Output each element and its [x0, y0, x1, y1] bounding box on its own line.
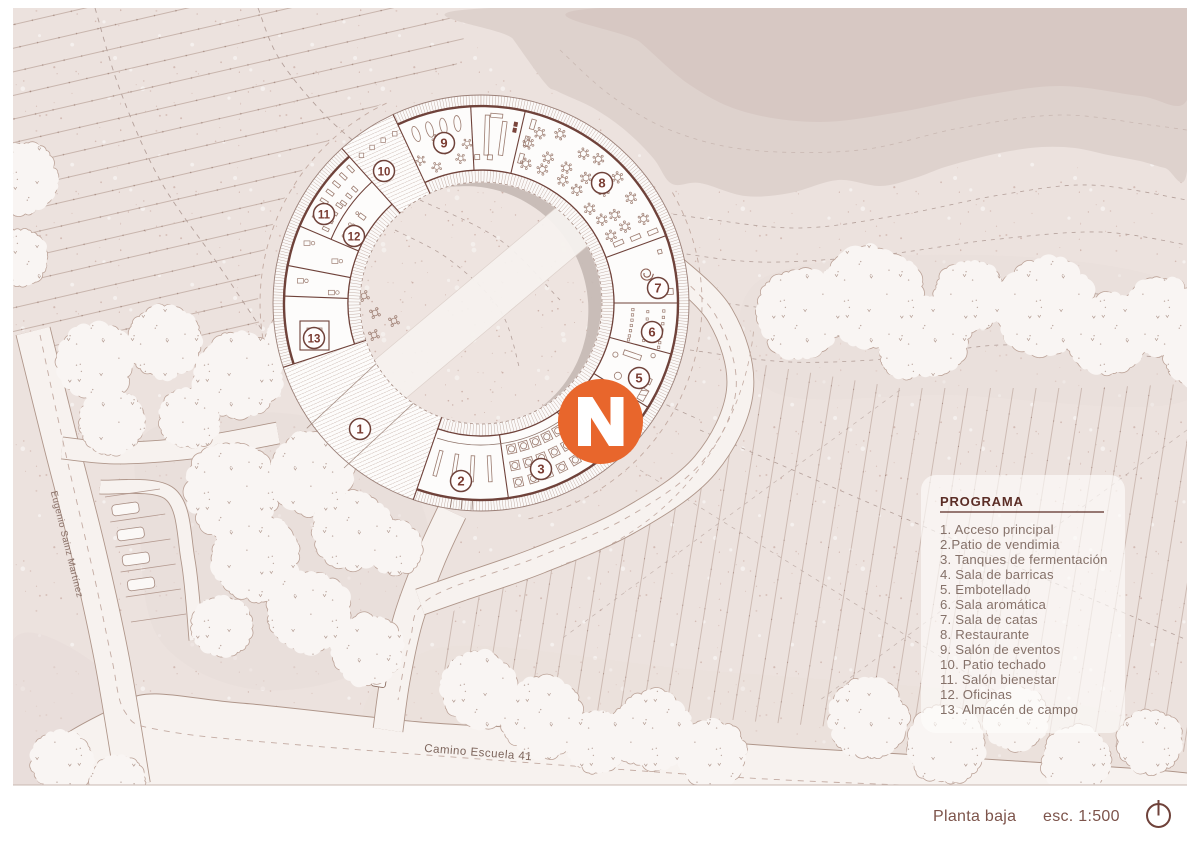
svg-text:5. Embotellado: 5. Embotellado	[940, 582, 1031, 597]
svg-text:10. Patio techado: 10. Patio techado	[940, 657, 1046, 672]
svg-text:5: 5	[635, 370, 642, 385]
svg-text:esc. 1:500: esc. 1:500	[1043, 808, 1120, 825]
svg-text:3. Tanques de fermentación: 3. Tanques de fermentación	[940, 552, 1108, 567]
svg-text:2.Patio de vendimia: 2.Patio de vendimia	[940, 537, 1060, 552]
svg-text:4. Sala de barricas: 4. Sala de barricas	[940, 567, 1054, 582]
svg-text:1. Acceso principal: 1. Acceso principal	[940, 522, 1054, 537]
svg-text:2: 2	[457, 473, 464, 488]
svg-text:13. Almacén de campo: 13. Almacén de campo	[940, 702, 1078, 717]
svg-text:7: 7	[654, 280, 661, 295]
svg-text:11. Salón bienestar: 11. Salón bienestar	[940, 672, 1057, 687]
svg-text:12: 12	[348, 231, 361, 243]
svg-text:12. Oficinas: 12. Oficinas	[940, 687, 1012, 702]
svg-text:6. Sala aromática: 6. Sala aromática	[940, 597, 1046, 612]
svg-text:11: 11	[318, 209, 331, 221]
svg-text:PROGRAMA: PROGRAMA	[940, 494, 1024, 509]
svg-text:7. Sala de catas: 7. Sala de catas	[940, 612, 1038, 627]
svg-text:Planta baja: Planta baja	[933, 808, 1016, 825]
svg-text:10: 10	[378, 166, 391, 178]
svg-text:6: 6	[648, 324, 655, 339]
svg-text:9: 9	[440, 135, 447, 150]
svg-text:8. Restaurante: 8. Restaurante	[940, 627, 1029, 642]
svg-text:1: 1	[356, 421, 363, 436]
svg-text:9. Salón de eventos: 9. Salón de eventos	[940, 642, 1061, 657]
svg-text:8: 8	[598, 175, 605, 190]
svg-text:3: 3	[537, 461, 544, 476]
svg-text:13: 13	[308, 333, 321, 345]
